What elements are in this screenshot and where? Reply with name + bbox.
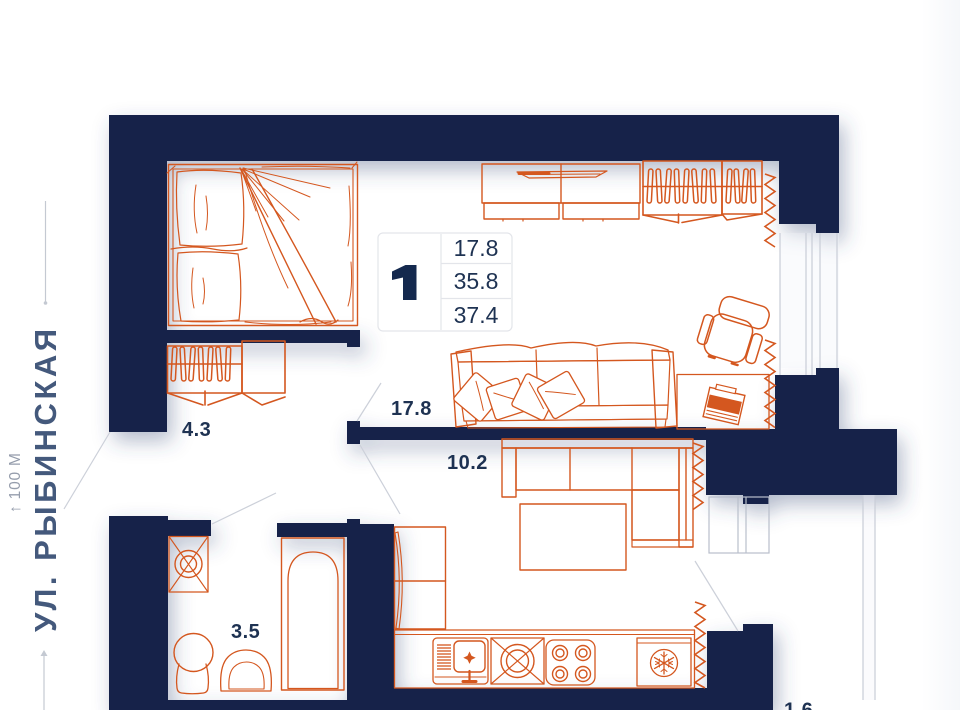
- svg-text:↑ 100 М: ↑ 100 М: [7, 452, 24, 513]
- svg-text:37.4: 37.4: [454, 302, 499, 328]
- svg-text:17.8: 17.8: [454, 235, 499, 261]
- svg-text:17.8: 17.8: [391, 398, 432, 420]
- svg-text:3.5: 3.5: [231, 621, 260, 643]
- svg-text:10.2: 10.2: [447, 452, 488, 474]
- svg-text:35.8: 35.8: [454, 268, 499, 294]
- svg-text:1.6: 1.6: [784, 700, 813, 710]
- svg-text:УЛ. РЫБИНСКАЯ: УЛ. РЫБИНСКАЯ: [28, 325, 63, 632]
- svg-text:4.3: 4.3: [182, 419, 211, 441]
